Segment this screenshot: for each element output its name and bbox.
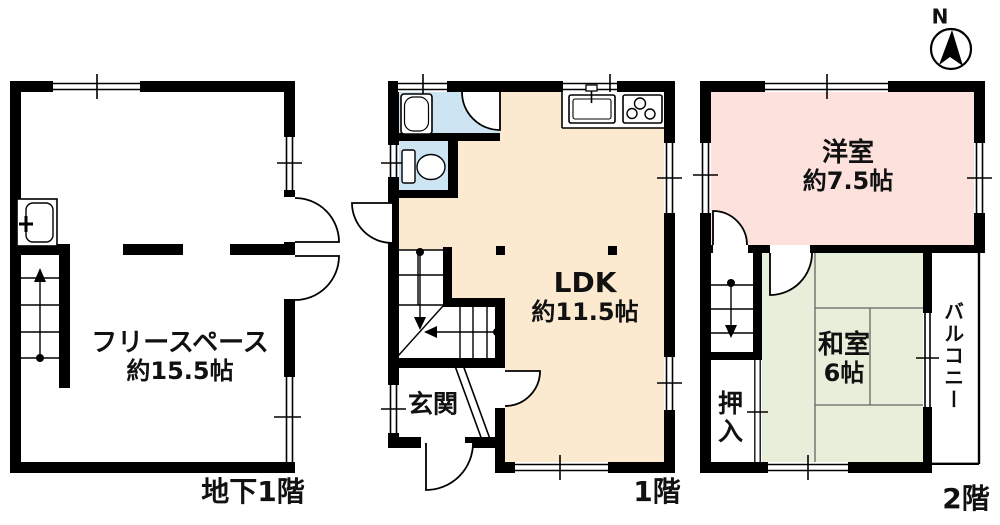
- basement-door-lower: [295, 256, 339, 300]
- floor-plan-drawing: [0, 0, 1000, 525]
- western-room-door-opening: [713, 245, 748, 253]
- room-size: 約15.5帖: [91, 358, 269, 386]
- closet-label: 押入: [715, 390, 744, 446]
- room-size: 約11.5帖: [531, 299, 638, 327]
- floor-plan-page: フリースペース 約15.5帖 地下1階 LDK 約11.5帖 玄関 1階 洋室 …: [0, 0, 1000, 525]
- room-name: フリースペース: [91, 328, 269, 358]
- japanese-room-label: 和室 6帖: [818, 330, 870, 388]
- basement-door-opening-lower: [284, 255, 295, 299]
- free-space-room-label: フリースペース 約15.5帖: [91, 328, 269, 386]
- entrance-partition: [455, 365, 490, 440]
- room-name: 洋室: [803, 138, 894, 168]
- ldk-room-label: LDK 約11.5帖: [531, 267, 638, 327]
- north-compass-icon: [931, 29, 971, 69]
- bathtub-icon: [401, 94, 432, 134]
- basement-door-upper: [295, 198, 339, 242]
- room-name: LDK: [531, 267, 638, 299]
- basement-floor-label: 地下1階: [201, 476, 304, 508]
- entrance-label: 玄関: [408, 390, 458, 419]
- north-label: N: [932, 5, 949, 28]
- basement-stairs: [21, 252, 59, 362]
- basement-walls: [10, 81, 295, 473]
- second-floor-label: 2階: [942, 483, 989, 515]
- western-room-label: 洋室 約7.5帖: [803, 138, 894, 196]
- basement-plan: [10, 74, 339, 473]
- room-size: 約7.5帖: [803, 168, 894, 196]
- washbasin-icon: [17, 199, 57, 246]
- room-name: 和室: [818, 330, 870, 360]
- entrance-door: [426, 443, 473, 490]
- basement-windows: [53, 74, 302, 462]
- room-size: 6帖: [818, 360, 870, 388]
- basement-door-opening-upper: [284, 197, 295, 242]
- second-floor-stairs: [711, 279, 753, 338]
- balcony-label: バルコニー: [940, 301, 963, 411]
- hall-door-opening: [495, 368, 505, 408]
- side-exterior-door: [352, 203, 392, 243]
- japanese-room-door-opening: [770, 245, 810, 253]
- stove-icon: [623, 95, 662, 123]
- first-floor-label: 1階: [633, 476, 680, 508]
